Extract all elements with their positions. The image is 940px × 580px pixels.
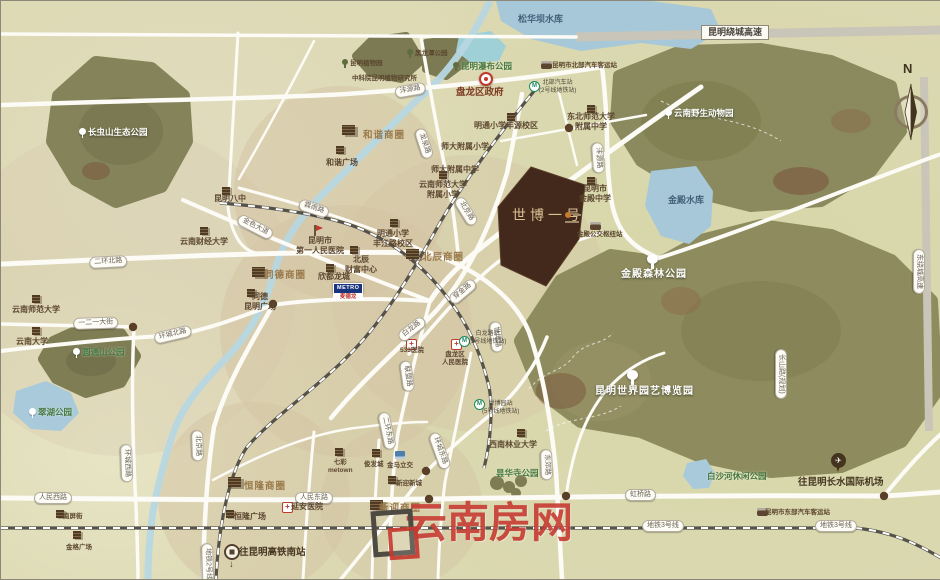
compass-north-label: N [903, 61, 912, 77]
labels-layer: 松华坝水库昆明绕城高速东绕城高速长虫山生态公园昆明植物园黑龙潭公园中科院昆明植物… [1, 1, 940, 579]
jinse-avenue-pill: 金色大道 [236, 213, 275, 241]
yunnan-finance-university-label: 云南财经大学 [180, 237, 228, 247]
cuihu-park-label: 翠湖公园 [29, 407, 72, 418]
north-bus-metro-station-label: 北部汽车站(2号线地铁站) [539, 80, 576, 96]
mall-icon [73, 531, 81, 539]
shida-attached-primary-label: 师大附属小学 [441, 142, 489, 152]
beichen-business-district-label: 北辰商圈 [422, 252, 464, 263]
mall-cluster-icon [228, 477, 241, 487]
jindian-reservoir-label: 金殿水库 [668, 195, 704, 206]
lianmeng-road-pill: 联盟路 [399, 360, 415, 392]
xindu-longcheng-label: 欣都龙城 [318, 272, 350, 282]
beijing-road-pill-north: 北京路 [453, 195, 480, 228]
airport-direction-label: 往昆明长水国际机场 [798, 477, 884, 488]
tree-icon [665, 109, 672, 119]
first-peoples-hospital-label: 昆明市第一人民医院 [296, 236, 344, 256]
tongde-kunming-plaza-label: 同德昆明广场 [244, 292, 276, 312]
panlong-district-government-label: 盘龙区政府 [456, 87, 504, 98]
jindian-forest-park-label: 金殿森林公园 [621, 269, 687, 281]
mall-icon [335, 448, 343, 456]
interchange-icon [395, 451, 405, 459]
heilongtan-park-label: 黑龙潭公园 [407, 49, 448, 58]
tree-icon [627, 370, 638, 385]
school-icon [517, 429, 525, 437]
tree-icon [407, 49, 413, 58]
kunming-botanical-garden-label: 昆明植物园 [342, 59, 383, 68]
erhuan-north-road-pill: 二环北路 [89, 255, 128, 269]
erhuan-east-road-pill: 二环东路 [377, 411, 397, 451]
renmin-west-road-pill: 人民西路 [34, 492, 72, 504]
songhuaba-reservoir-label: 松华坝水库 [518, 14, 563, 25]
expo-metro-station-label: 世博园站(5号线地铁站) [482, 401, 519, 417]
school-icon [32, 327, 40, 335]
hongqiao-road-pill: 虹桥路 [625, 489, 656, 501]
fengyuan-road-pill-north: 沣源路 [591, 142, 605, 174]
henglong-business-district-label: 恒隆商圈 [244, 481, 286, 492]
nanping-street-label: 南屏街 [63, 513, 83, 521]
waterfall-park-label: 昆明瀑布公园 [453, 61, 512, 71]
chuanjin-road-pill: 穿金路 [447, 277, 478, 306]
mall-icon [336, 146, 344, 154]
junfacheng-label: 俊发城 [364, 461, 384, 469]
location-map: 松华坝水库昆明绕城高速东绕城高速长虫山生态公园昆明植物园黑龙潭公园中科院昆明植物… [0, 0, 940, 580]
expo-garden-label: 昆明世界园艺博览园 [595, 386, 694, 398]
mall-cluster-icon [406, 249, 419, 259]
panlong-peoples-hospital-label: 盘龙区人民医院 [442, 351, 468, 367]
tanhuasi-park-label: 昙华寺公园 [496, 468, 539, 478]
school-icon [390, 219, 398, 227]
school-icon [200, 227, 208, 235]
fengyuan-road-pill-west: 沣源路 [394, 82, 427, 99]
changshan-road-pill: 长山路(规划) [775, 349, 787, 399]
dongjiao-road-pill: 东郊路 [540, 449, 553, 480]
beijing-road-pill-south: 北京路 [191, 430, 204, 461]
mall-icon [388, 476, 396, 484]
yuantongshan-park-label: 圆通山公园 [73, 347, 125, 358]
airport-pin-icon [831, 453, 846, 468]
baishahe-park-label: 白沙河休闲公园 [707, 471, 767, 481]
mall-icon [372, 449, 380, 457]
bus-station-icon [590, 222, 601, 230]
hexie-plaza-label: 和谐广场 [326, 158, 358, 168]
tongde-business-district-label: 同德商圈 [264, 270, 306, 281]
jinma-interchange-label: 金马立交 [387, 462, 413, 470]
longquan-road-pill: 龙泉路 [414, 127, 435, 160]
southwest-forestry-university-label: 西南林业大学 [489, 440, 537, 450]
jinge-plaza-label: 金格广场 [66, 544, 92, 552]
yunnan-fangwang-logo-inner-frame [388, 526, 420, 560]
north-bus-terminal-label: 昆明市北部汽车客运站 [552, 62, 617, 70]
mall-cluster-icon [342, 125, 355, 135]
kunming-no8-middle-school-label: 昆明八中 [214, 194, 246, 204]
east-raocheng-expressway-label: 东绕城高速 [913, 249, 925, 294]
tree-icon [73, 348, 80, 358]
hexie-business-district-label: 和谐商圈 [363, 130, 405, 141]
raocheng-expressway-label: 昆明绕城高速 [701, 25, 769, 40]
government-marker-icon [479, 72, 493, 86]
huancheng-north-road-pill: 环城北路 [153, 324, 193, 344]
huancheng-east-road-pill: 环城东路 [428, 431, 452, 471]
yiereyi-street-pill: 一二一大街 [73, 316, 118, 330]
metro-line3-pill-west: 地铁3号线 [642, 520, 684, 532]
east-bus-terminal-label: 昆明市东部汽车客运站 [765, 509, 830, 517]
qicai-metown-label: 七彩metown [328, 459, 353, 475]
yunnan-university-label: 云南大学 [16, 337, 48, 347]
mall-icon [350, 246, 358, 254]
xinying-newtown-label: 新迎新城 [396, 480, 422, 488]
changchongshan-eco-park-label: 长虫山生态公园 [79, 127, 148, 138]
bailong-metro-station-label: 白龙路站(5号线地铁站) [469, 331, 506, 347]
metro-line3-pill-east: 地铁3号线 [815, 520, 857, 532]
railway-station-icon [224, 544, 240, 560]
south-railway-direction-label: 往昆明高铁南站 [239, 547, 306, 558]
tree-icon [647, 254, 658, 269]
yunnan-fangwang-logo-icon [370, 509, 415, 558]
shida-attached-middle-label: 师大附属中学 [431, 165, 479, 175]
yunnan-normal-university-label: 云南师范大学 [12, 305, 60, 315]
mingtong-primary-fengjiang-label: 明通小学丰江路校区 [373, 229, 413, 249]
metro-line2-pill: 地铁2号线 [201, 543, 214, 580]
hospital-flag-icon [314, 225, 316, 236]
mingtong-primary-fengyuan-label: 明通小学丰源校区 [474, 121, 538, 131]
mall-icon [326, 264, 334, 272]
tree-icon [453, 62, 459, 71]
south-direction-arrow: ↓ [229, 559, 234, 570]
hospital-533-label: 533医院 [400, 347, 424, 355]
cas-botany-institute-label: 中科院昆明植物研究所 [352, 75, 417, 83]
yanan-hospital-label: 延安医院 [291, 502, 323, 512]
watermark-text: 云南房网 [405, 498, 573, 548]
developer-logo-icon [565, 212, 581, 226]
jindian-middle-school-label: 昆明市金殿中学 [579, 184, 611, 204]
school-icon [507, 113, 515, 121]
mall-icon [226, 510, 234, 518]
wildlife-park-label: 云南野生动物园 [665, 108, 734, 119]
school-icon [32, 295, 40, 303]
huancheng-west-road-pill: 环城西路 [120, 444, 133, 482]
tree-icon [342, 59, 348, 68]
tree-icon [79, 128, 86, 138]
dongbei-normal-attached-middle-label: 东北师范大学附属中学 [567, 112, 615, 132]
tree-icon [29, 408, 36, 418]
metro-supermarket-sign: METRO麦德龙 [333, 283, 363, 300]
henglong-plaza-label: 恒隆广场 [234, 512, 266, 522]
linyu-road-pill: 霖雨路 [297, 198, 330, 219]
bus-station-icon [541, 61, 552, 69]
jindian-bus-hub-label: 金殿公交枢纽站 [577, 231, 623, 239]
